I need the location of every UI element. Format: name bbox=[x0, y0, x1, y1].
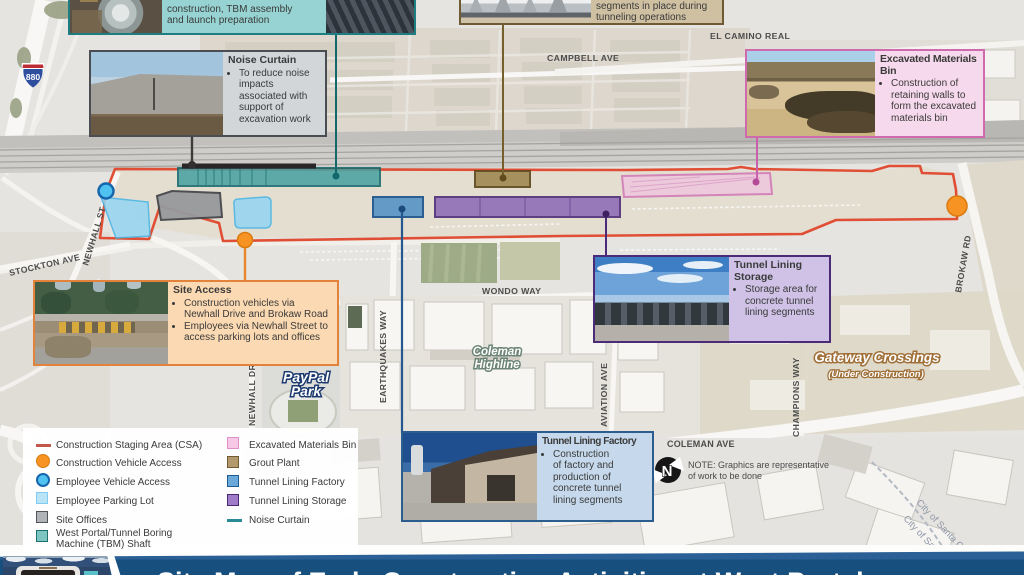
svg-text:AVIATION AVE: AVIATION AVE bbox=[599, 363, 609, 427]
svg-text:NEWHALL DR: NEWHALL DR bbox=[247, 363, 257, 426]
svg-text:CHAMPIONS WAY: CHAMPIONS WAY bbox=[791, 357, 801, 437]
svg-text:of work to be done: of work to be done bbox=[688, 471, 762, 481]
svg-text:WONDO WAY: WONDO WAY bbox=[482, 286, 541, 296]
svg-text:Highline: Highline bbox=[474, 359, 520, 371]
svg-text:COLEMAN AVE: COLEMAN AVE bbox=[667, 439, 735, 449]
svg-text:Gateway Crossings: Gateway Crossings bbox=[814, 350, 940, 365]
svg-text:EL CAMINO REAL: EL CAMINO REAL bbox=[710, 31, 791, 41]
svg-text:CAMPBELL AVE: CAMPBELL AVE bbox=[547, 53, 619, 63]
svg-text:N: N bbox=[662, 463, 673, 480]
svg-text:(Under Construction): (Under Construction) bbox=[828, 369, 924, 380]
svg-text:EARTHQUAKES WAY: EARTHQUAKES WAY bbox=[378, 310, 388, 403]
svg-text:Coleman: Coleman bbox=[473, 346, 522, 358]
svg-text:NOTE: Graphics are representat: NOTE: Graphics are representative bbox=[688, 460, 829, 470]
svg-text:880: 880 bbox=[26, 72, 40, 82]
svg-text:Park: Park bbox=[291, 383, 323, 399]
